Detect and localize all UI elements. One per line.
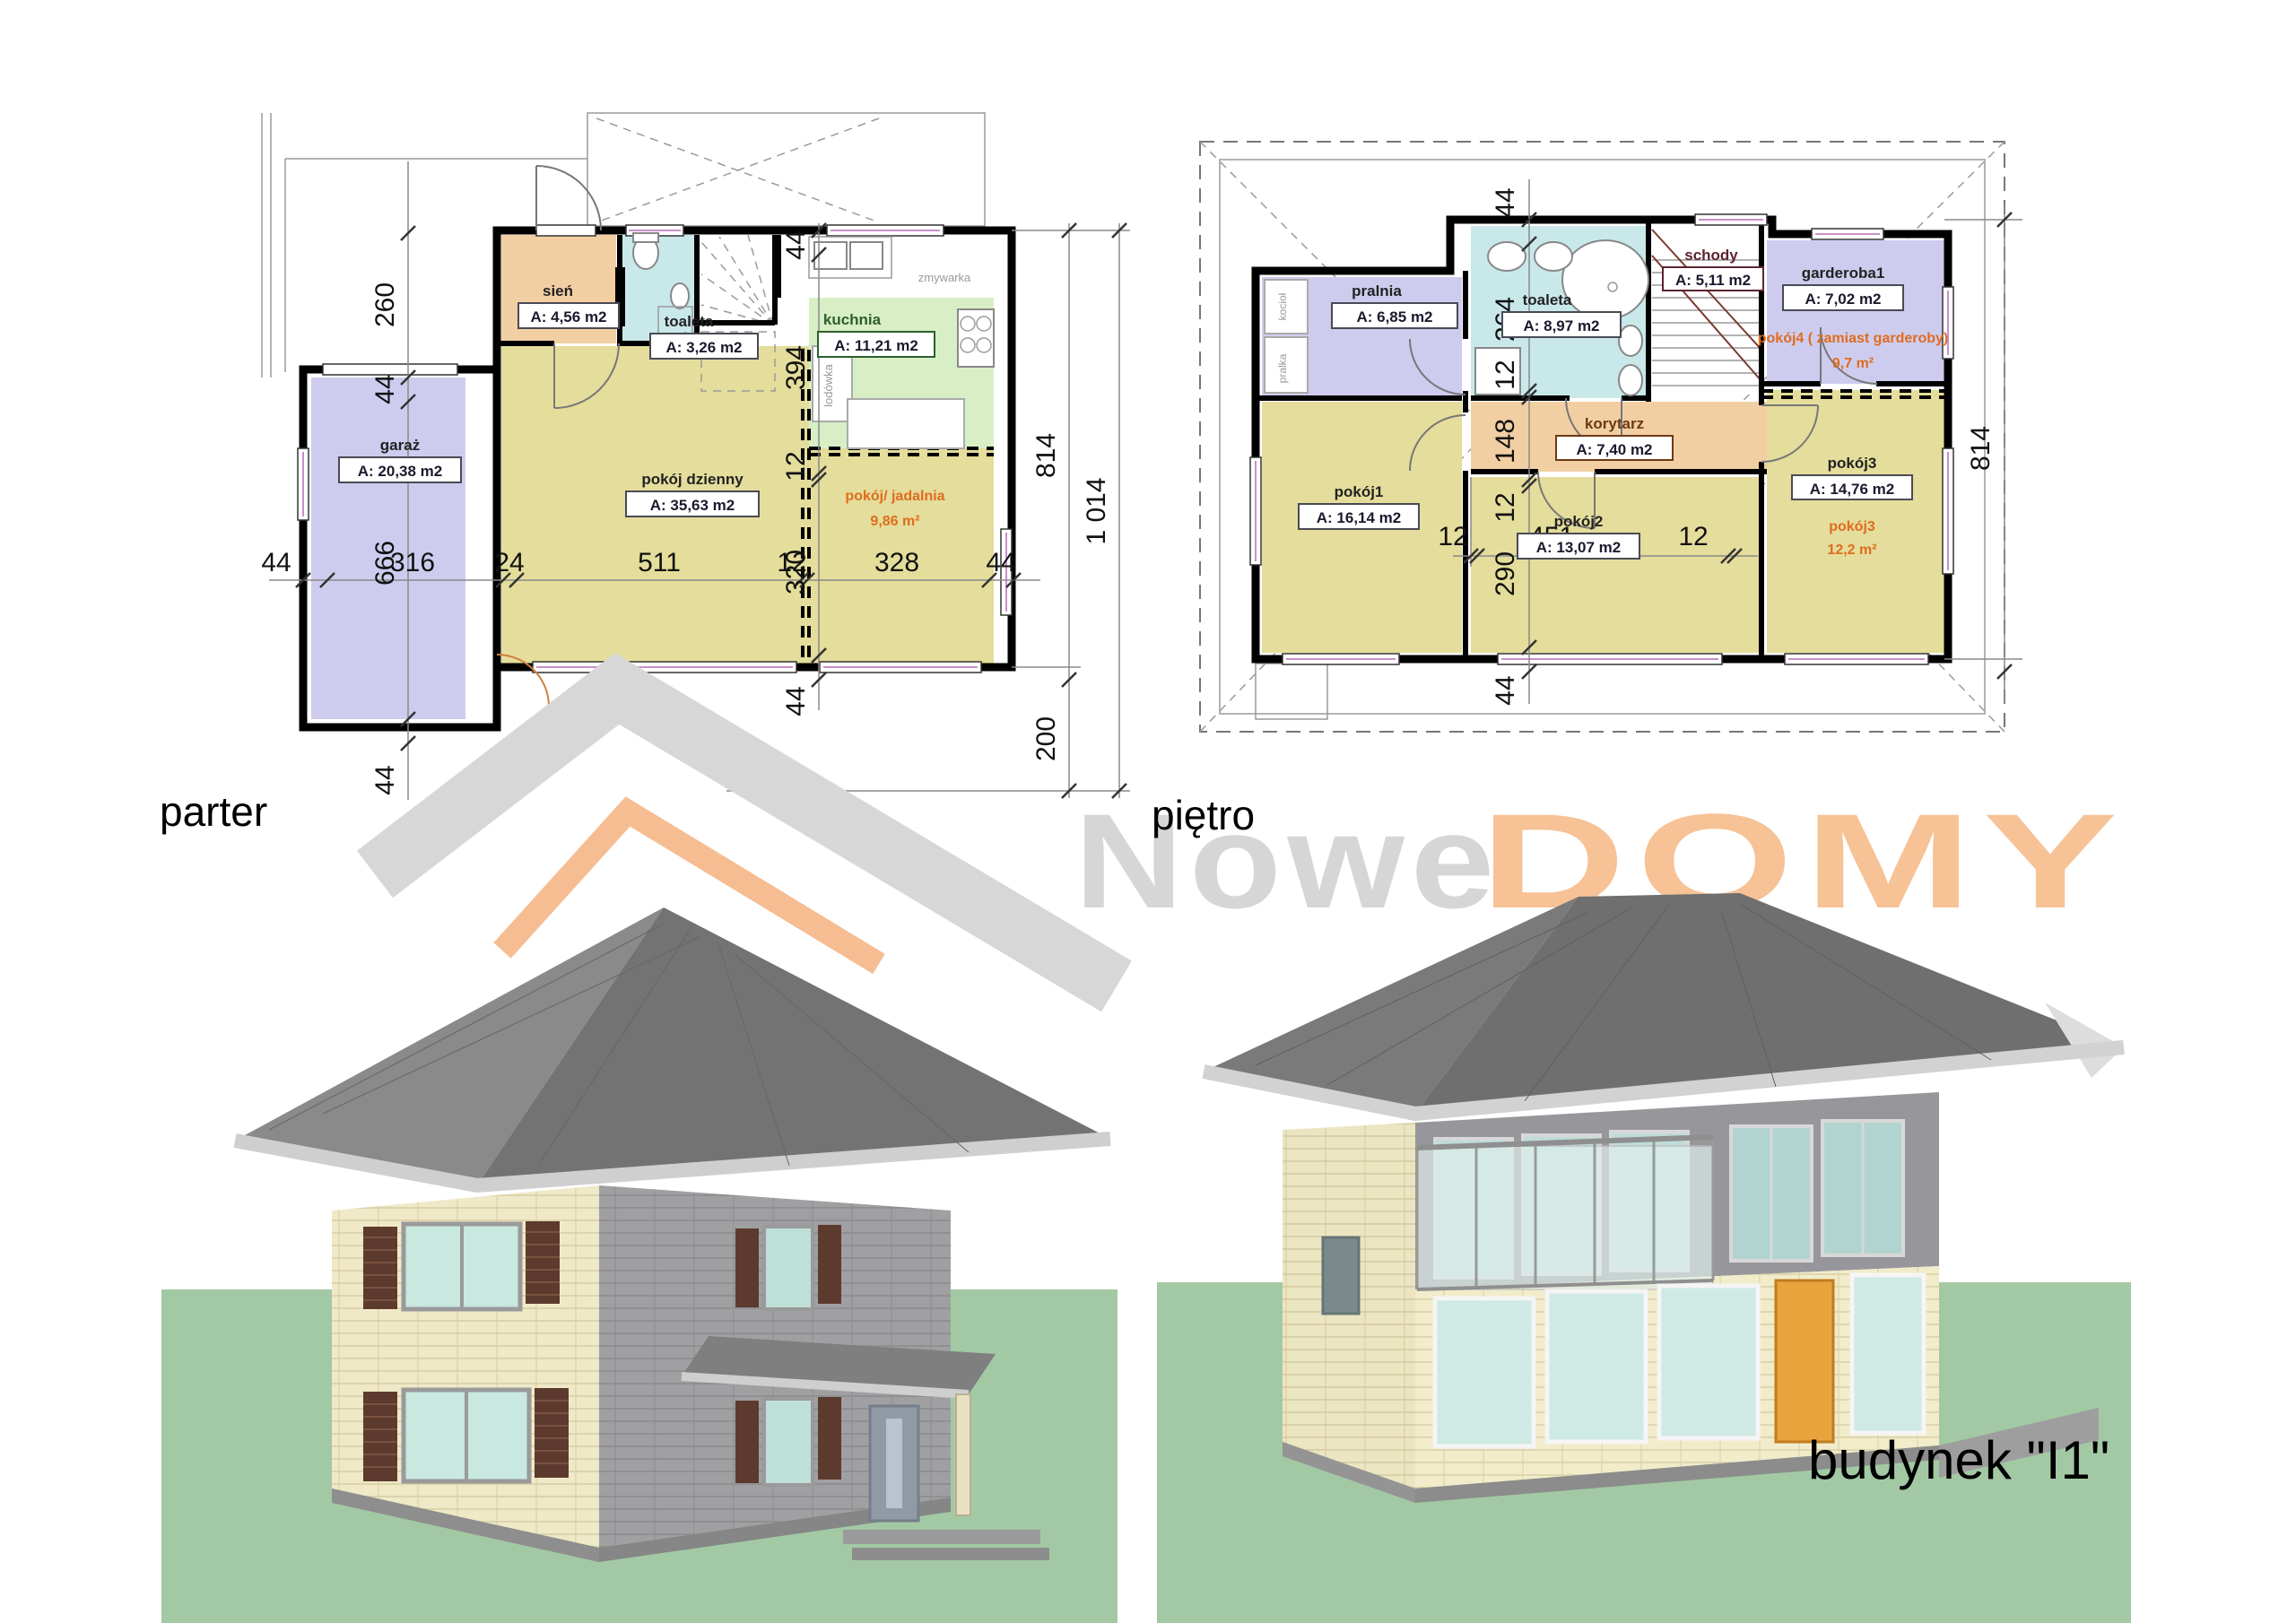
- house2-orange-door: [1776, 1280, 1833, 1442]
- house-rendering-front: [161, 870, 1166, 1623]
- caption-parter: parter: [160, 787, 267, 836]
- architectural-sheet: zmywarka lodówka 44 316 24 511 12 328 44…: [0, 0, 2296, 1623]
- house1-roof: [235, 907, 1110, 1185]
- building-label: budynek "I1": [1808, 1429, 2109, 1491]
- house2-balcony: [1417, 1137, 1713, 1289]
- house-rendering-garden: [1148, 861, 2188, 1623]
- house2-lower-windows: [1435, 1275, 1924, 1446]
- house2-roof: [1204, 893, 2124, 1114]
- caption-pietro: piętro: [1152, 791, 1255, 839]
